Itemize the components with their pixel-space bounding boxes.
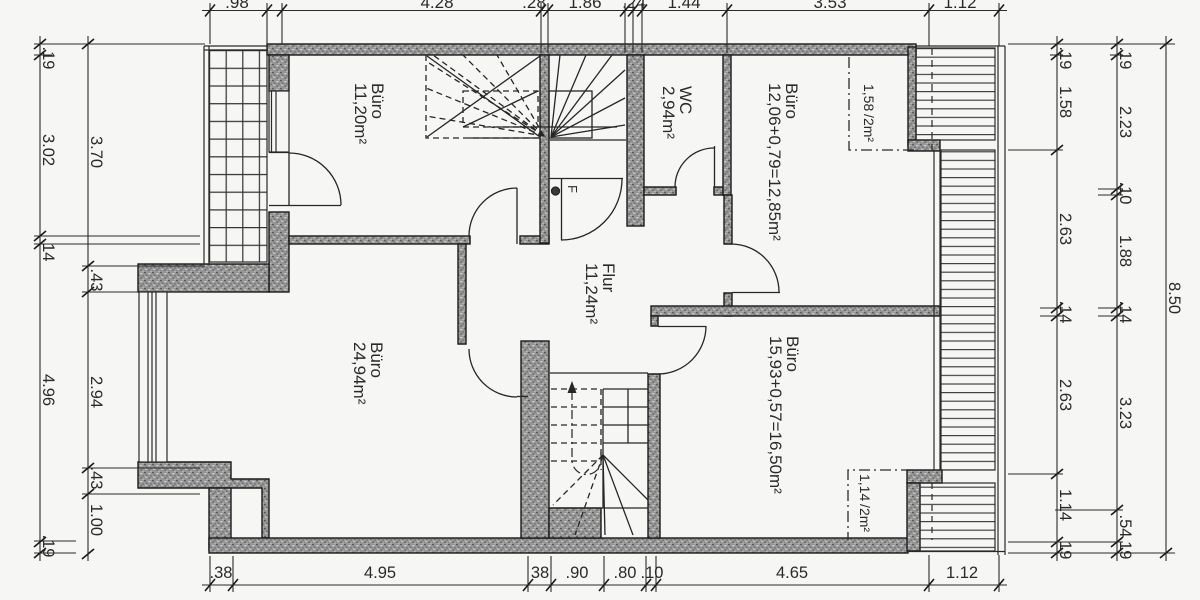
svg-text:.90: .90 xyxy=(566,564,589,582)
svg-text:4.96: 4.96 xyxy=(39,374,57,406)
svg-text:2.63: 2.63 xyxy=(1056,379,1074,411)
svg-text:.19: .19 xyxy=(1056,47,1074,70)
svg-text:1.12: 1.12 xyxy=(946,564,978,582)
svg-text:.98: .98 xyxy=(225,0,249,12)
svg-text:15,93+0,57=16,50m²: 15,93+0,57=16,50m² xyxy=(766,336,785,494)
svg-text:1.44: 1.44 xyxy=(667,0,700,12)
svg-text:F: F xyxy=(565,185,580,193)
svg-text:.14: .14 xyxy=(1056,301,1074,324)
svg-text:2,94m²: 2,94m² xyxy=(659,86,678,139)
svg-text:.28: .28 xyxy=(522,0,546,12)
svg-text:.43: .43 xyxy=(87,467,105,490)
svg-text:1,14 /2m²: 1,14 /2m² xyxy=(857,474,873,532)
svg-text:24,94m²: 24,94m² xyxy=(350,342,369,405)
svg-text:.19: .19 xyxy=(1056,537,1074,560)
svg-text:.54: .54 xyxy=(1116,515,1134,538)
svg-text:.10: .10 xyxy=(641,564,664,582)
svg-text:8.50: 8.50 xyxy=(1165,282,1183,314)
svg-text:.38: .38 xyxy=(210,564,233,582)
svg-text:.19: .19 xyxy=(1116,47,1134,70)
svg-text:38: 38 xyxy=(531,564,549,582)
svg-text:1.14: 1.14 xyxy=(1056,489,1074,521)
svg-text:.14: .14 xyxy=(1116,301,1134,324)
svg-text:.43: .43 xyxy=(87,269,105,292)
svg-text:3.02: 3.02 xyxy=(39,134,57,166)
svg-text:1,58 /2m²: 1,58 /2m² xyxy=(861,84,877,142)
svg-text:.19: .19 xyxy=(1116,537,1134,560)
svg-text:.80: .80 xyxy=(614,564,637,582)
svg-text:11,20m²: 11,20m² xyxy=(351,83,370,144)
svg-text:1.86: 1.86 xyxy=(568,0,601,12)
svg-text:4.95: 4.95 xyxy=(364,564,396,582)
svg-text:3.53: 3.53 xyxy=(813,0,846,12)
svg-text:2.23: 2.23 xyxy=(1116,106,1134,138)
svg-text:.19: .19 xyxy=(39,47,57,70)
svg-text:.14: .14 xyxy=(39,239,57,262)
svg-text:12,06+0,79=12,85m²: 12,06+0,79=12,85m² xyxy=(765,83,784,241)
svg-text:1.00: 1.00 xyxy=(87,504,105,536)
svg-text:.24: .24 xyxy=(622,0,646,12)
svg-text:4.28: 4.28 xyxy=(420,0,453,12)
svg-text:2.94: 2.94 xyxy=(87,376,105,408)
svg-text:2.63: 2.63 xyxy=(1056,213,1074,245)
svg-text:1.12: 1.12 xyxy=(943,0,976,12)
svg-text:1.88: 1.88 xyxy=(1116,235,1134,267)
svg-text:.19: .19 xyxy=(39,535,57,558)
svg-text:11,24m²: 11,24m² xyxy=(582,263,601,324)
svg-text:.10: .10 xyxy=(1116,182,1134,205)
svg-text:3.70: 3.70 xyxy=(87,136,105,168)
svg-text:4.65: 4.65 xyxy=(776,564,808,582)
svg-text:3.23: 3.23 xyxy=(1116,397,1134,429)
svg-text:1.58: 1.58 xyxy=(1056,86,1074,118)
